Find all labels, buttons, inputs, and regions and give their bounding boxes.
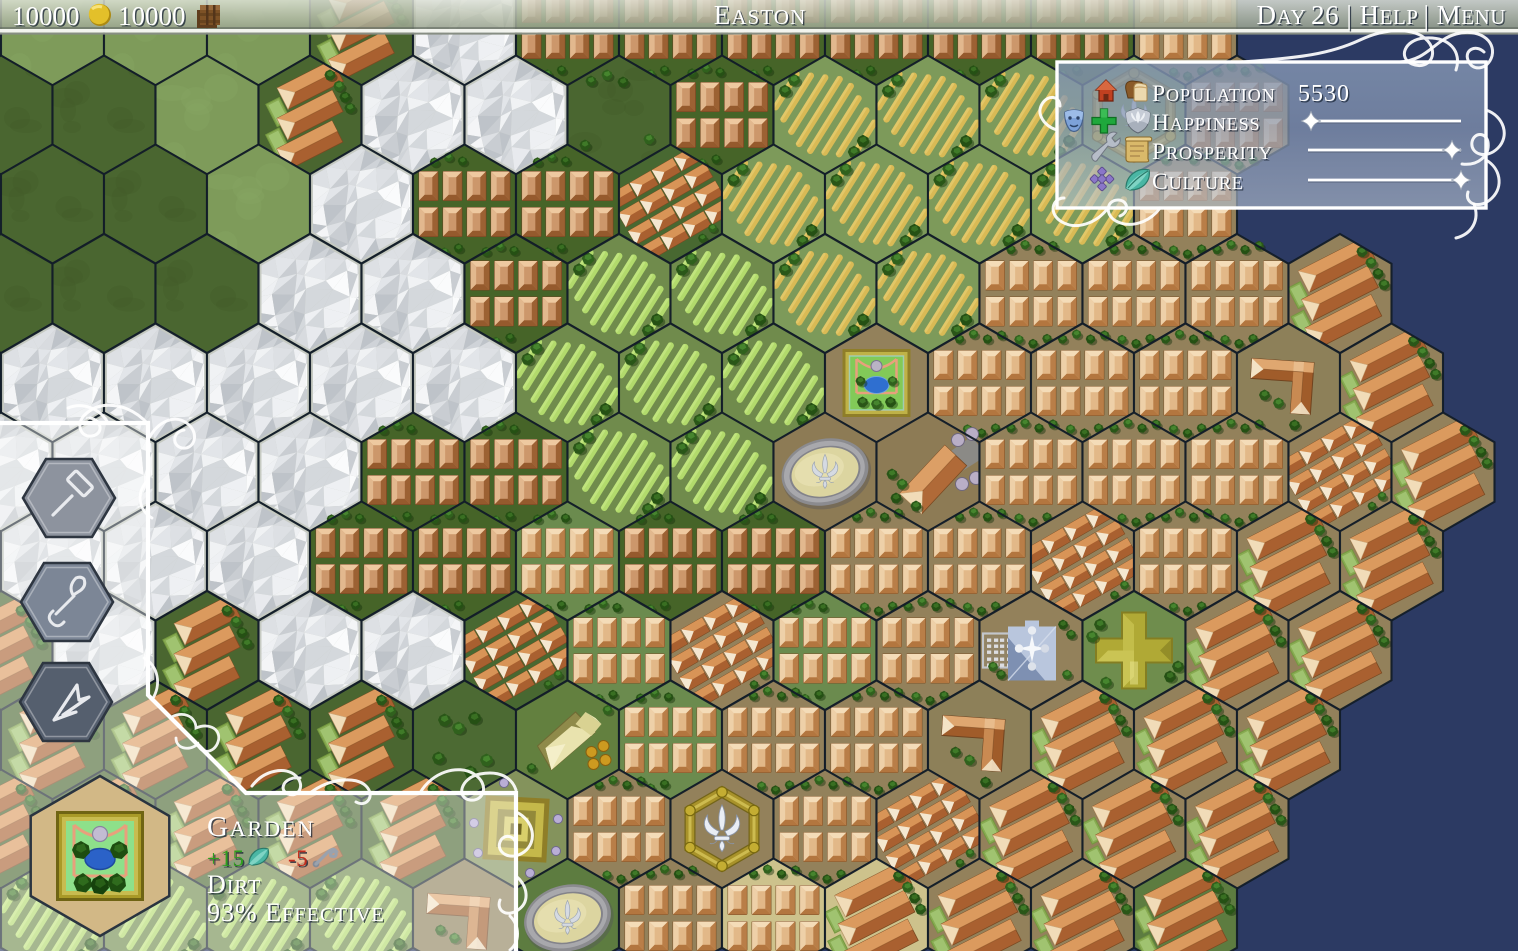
svg-text:HAPPINESS: HAPPINESS (1152, 110, 1261, 136)
svg-text:10000: 10000 (12, 1, 80, 31)
svg-text:10000: 10000 (118, 1, 186, 31)
svg-text:5530: 5530 (1298, 81, 1350, 107)
svg-text:CULTURE: CULTURE (1152, 169, 1244, 195)
svg-text:DAY 26 | HELP | MENU: DAY 26 | HELP | MENU (1257, 0, 1506, 30)
svg-text:PROSPERITY: PROSPERITY (1152, 139, 1273, 165)
svg-text:GARDEN: GARDEN (207, 811, 315, 843)
svg-text:EASTON: EASTON (714, 0, 806, 30)
svg-text:POPULATION: POPULATION (1152, 81, 1276, 107)
svg-text:-5: -5 (288, 846, 308, 871)
svg-text:+15: +15 (207, 846, 244, 871)
